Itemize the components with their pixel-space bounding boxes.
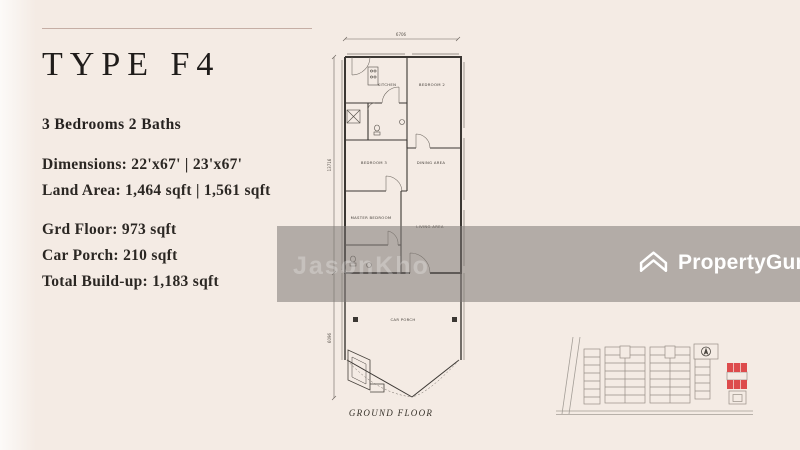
decorative-rule	[42, 28, 312, 29]
dim-depth-porch-label: 6096	[327, 332, 332, 343]
housing-blocks	[584, 346, 747, 404]
room-label-dining: DINING AREA	[417, 160, 446, 165]
dimensions-line: Dimensions: 22'x67' | 23'x67'	[42, 156, 271, 174]
basin-icon	[400, 120, 405, 125]
left-margin-strip	[0, 0, 36, 450]
land-area-line: Land Area: 1,464 sqft | 1,561 sqft	[42, 182, 271, 200]
unit-type-title: TYPE F4	[42, 46, 271, 84]
room-label-kitchen: KITCHEN	[378, 82, 397, 87]
small-block	[729, 391, 746, 404]
propertyguru-logo-text: PropertyGuru	[678, 251, 800, 275]
area-group: Grd Floor: 973 sqft Car Porch: 210 sqft …	[42, 221, 271, 291]
room-label-master: MASTER BEDROOM	[351, 215, 392, 220]
highlighted-units	[727, 363, 747, 389]
block-a	[584, 349, 600, 404]
room-label-bedroom2: BEDROOM 2	[419, 82, 445, 87]
room-label-car-porch: CAR PORCH	[390, 317, 415, 322]
site-plan-thumbnail	[550, 332, 762, 427]
toilet-icon	[374, 125, 380, 135]
block-c	[650, 346, 690, 403]
north-arrow-icon	[694, 344, 718, 359]
block-b	[605, 346, 645, 403]
stove-icon	[368, 67, 378, 85]
mid-unit	[727, 372, 747, 380]
propertyguru-logo: PropertyGuru	[638, 247, 800, 279]
agent-watermark: JasonKho	[293, 252, 430, 281]
info-panel: TYPE F4 3 Bedrooms 2 Baths Dimensions: 2…	[42, 46, 271, 299]
flyer-page: TYPE F4 3 Bedrooms 2 Baths Dimensions: 2…	[0, 0, 800, 450]
porch-column	[353, 317, 358, 322]
dimension-group: Dimensions: 22'x67' | 23'x67' Land Area:…	[42, 156, 271, 200]
car-porch-line: Car Porch: 210 sqft	[42, 247, 271, 265]
bed-bath-summary: 3 Bedrooms 2 Baths	[42, 116, 271, 134]
floor-caption: GROUND FLOOR	[349, 408, 433, 418]
sink-icon	[347, 110, 360, 123]
dim-width-label: 6706	[396, 32, 407, 37]
floor-plan-drawing: 6706 13716 6096	[315, 18, 480, 430]
porch-column	[452, 317, 457, 322]
room-label-bedroom3: BEDROOM 3	[361, 160, 387, 165]
propertyguru-logo-icon	[638, 248, 669, 279]
ground-floor-line: Grd Floor: 973 sqft	[42, 221, 271, 239]
gate-leaves	[347, 360, 459, 397]
total-buildup-line: Total Build-up: 1,183 sqft	[42, 273, 271, 291]
dim-depth-main-label: 13716	[327, 158, 332, 171]
